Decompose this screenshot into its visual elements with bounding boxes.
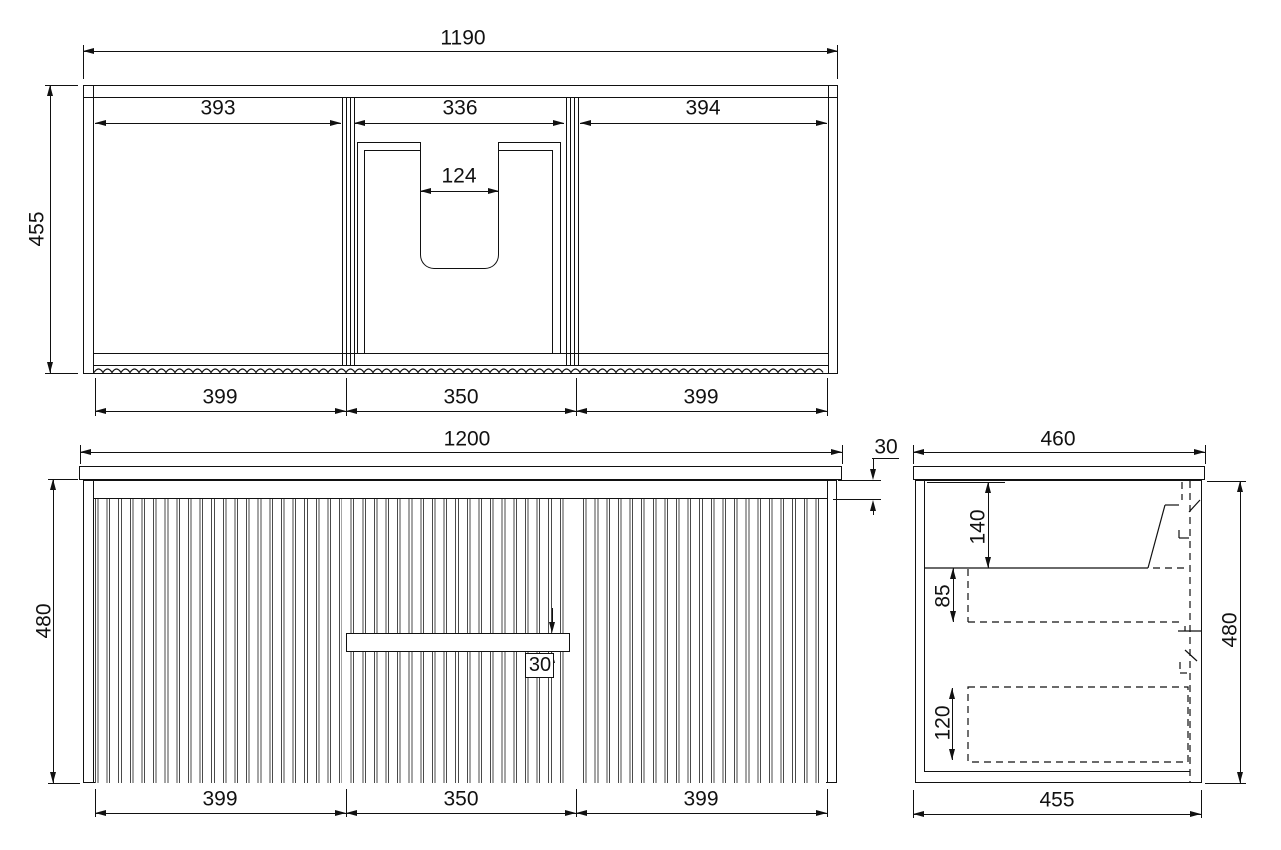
dim-front-drawer-center: 350 <box>443 789 478 810</box>
dim-arrow <box>50 479 56 490</box>
dim-ext-line <box>48 783 80 784</box>
dim-arrow <box>346 810 357 816</box>
dim-plan-width: 1190 <box>440 28 485 49</box>
side-inner-left-line <box>924 481 925 771</box>
dim-arrow <box>95 120 106 126</box>
dim-arrow <box>913 811 924 817</box>
dim-arrow <box>95 408 106 414</box>
side-inner-bottom-line <box>924 771 1190 772</box>
dim-arrow <box>950 568 956 579</box>
dim-arrow <box>576 408 587 414</box>
plan-partition-left-line <box>354 97 355 365</box>
dim-plan-front-right: 399 <box>683 387 718 408</box>
dim-front-width: 1200 <box>444 429 491 450</box>
front-handle-recess <box>346 633 570 652</box>
plan-basin-wall-line <box>560 142 561 353</box>
plan-front-rail-bottom-line <box>93 365 828 366</box>
dim-arrow <box>1237 481 1243 492</box>
plan-left-wall-line <box>93 86 94 373</box>
dim-ext-line <box>842 445 843 464</box>
plan-basin-top-line <box>357 142 421 143</box>
dim-plan-opening-right: 394 <box>685 98 720 119</box>
dim-arrow <box>47 85 53 96</box>
dim-ext-line <box>838 480 881 481</box>
dim-line <box>873 511 874 515</box>
dim-arrow <box>346 408 357 414</box>
dim-ext-line <box>827 378 828 416</box>
plan-partition-right-line <box>570 97 571 365</box>
dim-arrow <box>827 48 838 54</box>
dim-arrow <box>488 188 499 194</box>
dim-arrow <box>335 408 346 414</box>
dim-ext-line <box>1205 445 1206 464</box>
dim-arrow <box>553 120 564 126</box>
dim-plan-opening-left: 393 <box>200 98 235 119</box>
dim-line <box>913 814 1201 815</box>
dim-line <box>50 85 51 373</box>
plan-partition-right-line <box>574 97 575 365</box>
plan-front-rail-top-line <box>93 353 828 354</box>
dim-arrow <box>870 500 876 511</box>
dim-plan-depth: 455 <box>27 211 48 246</box>
dim-ext-line <box>827 789 828 817</box>
dim-arrow <box>816 408 827 414</box>
dim-arrow <box>985 482 991 493</box>
dim-side-depth: 460 <box>1040 429 1075 450</box>
dim-line <box>80 452 842 453</box>
dim-arrow <box>1194 449 1205 455</box>
dim-front-height: 480 <box>34 603 55 638</box>
plan-partition-left-line <box>346 97 347 365</box>
dim-line <box>83 51 838 52</box>
plan-drain-cutout <box>420 142 499 269</box>
dim-side-carcass-depth: 455 <box>1039 790 1074 811</box>
dim-front-top-reveal: 30 <box>874 437 897 458</box>
plan-partition-right-line <box>566 97 567 365</box>
dim-plan-cutout-width: 124 <box>441 166 476 187</box>
plan-basin-top-inner-line <box>364 150 421 151</box>
dim-arrow <box>985 557 991 568</box>
dim-arrow <box>580 120 591 126</box>
front-right-stile-line <box>827 481 828 782</box>
dim-arrow <box>354 120 365 126</box>
front-countertop <box>79 466 842 480</box>
side-carcass <box>915 480 1202 783</box>
front-door-seam <box>570 499 578 783</box>
dim-front-handle-gap: 30 <box>529 655 551 675</box>
dim-arrow <box>330 120 341 126</box>
dim-line <box>580 123 827 124</box>
plan-basin-top-inner-line <box>498 150 552 151</box>
dim-line <box>354 123 564 124</box>
dim-side-basin-drop: 140 <box>968 509 989 544</box>
plan-partition-right-line <box>578 97 579 365</box>
plan-partition-left-line <box>350 97 351 365</box>
dim-arrow <box>335 810 346 816</box>
dim-arrow <box>1237 772 1243 783</box>
dim-ext-line <box>45 373 78 374</box>
dim-arrow <box>913 449 924 455</box>
plan-basin-wall-line <box>357 142 358 353</box>
dim-ref-line <box>927 482 1005 483</box>
plan-basin-wall-line <box>552 150 553 353</box>
dim-arrow <box>816 120 827 126</box>
dim-front-door-right: 399 <box>683 789 718 810</box>
dim-ext-line <box>1201 790 1202 818</box>
dim-arrow <box>565 408 576 414</box>
dim-arrow <box>576 810 587 816</box>
dim-arrow <box>949 749 955 760</box>
dim-plan-front-center: 350 <box>443 387 478 408</box>
dim-arrow <box>95 810 106 816</box>
dim-line <box>552 608 553 623</box>
plan-basin-top-line <box>498 142 560 143</box>
dim-arrow <box>47 362 53 373</box>
dim-ext-line <box>1205 783 1246 784</box>
dim-arrow <box>50 772 56 783</box>
dim-arrow <box>549 622 555 633</box>
dim-arrow <box>831 449 842 455</box>
side-countertop <box>913 466 1205 480</box>
dim-arrow <box>420 188 431 194</box>
dim-arrow <box>870 469 876 480</box>
dim-line <box>95 813 827 814</box>
dim-arrow <box>816 810 827 816</box>
dim-arrow <box>1190 811 1201 817</box>
dim-line <box>95 411 827 412</box>
dim-arrow <box>80 449 91 455</box>
dim-side-height: 480 <box>1220 612 1241 647</box>
dim-line <box>913 452 1205 453</box>
dim-plan-opening-center: 336 <box>442 98 477 119</box>
dim-arrow <box>950 611 956 622</box>
dim-line <box>95 123 341 124</box>
plan-right-wall-line <box>828 86 829 373</box>
front-panel-top-line <box>93 498 828 499</box>
dim-side-lower-drawer: 120 <box>933 705 954 740</box>
dim-plan-front-left: 399 <box>202 387 237 408</box>
dim-arrow <box>83 48 94 54</box>
technical-drawing-canvas: 1190 455 393 336 394 124 399 <box>0 0 1281 850</box>
front-left-stile-line <box>93 481 94 782</box>
plan-basin-wall-line <box>364 150 365 353</box>
plan-partition-left-line <box>342 97 343 365</box>
dim-arrow <box>949 688 955 699</box>
dim-side-drawer-offset: 85 <box>933 584 954 607</box>
dim-front-door-left: 399 <box>202 789 237 810</box>
dim-arrow <box>565 810 576 816</box>
